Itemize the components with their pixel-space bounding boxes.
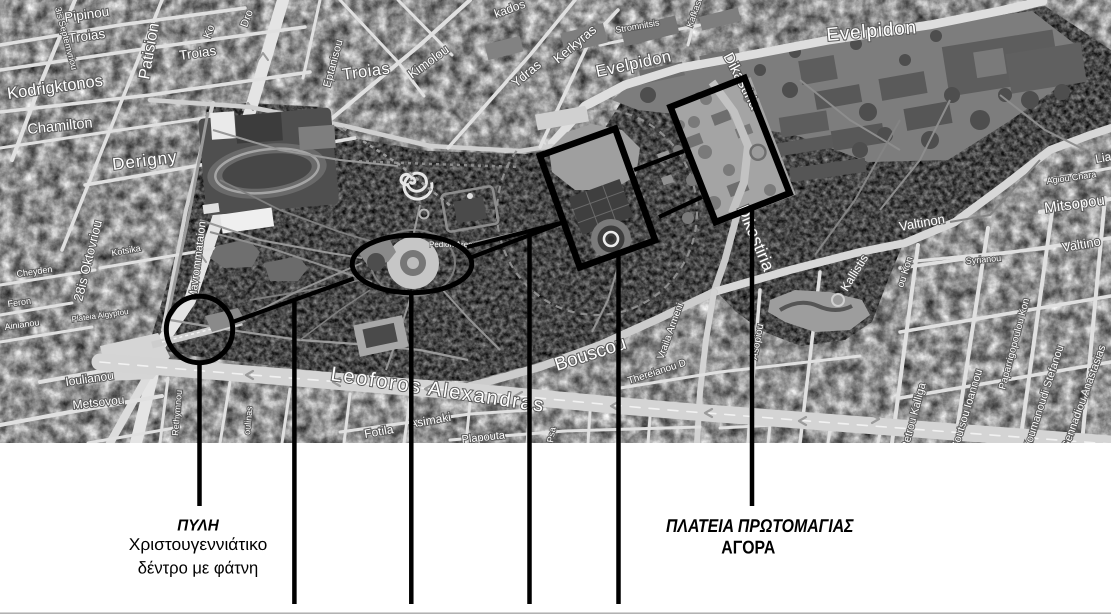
svg-text:Χριστουγεννιάτικο: Χριστουγεννιάτικο [129,535,268,554]
svg-text:ΠΛΑΤΕΙΑ ΠΡΩΤΟΜΑΓΙΑΣ: ΠΛΑΤΕΙΑ ΠΡΩΤΟΜΑΓΙΑΣ [666,515,854,536]
svg-text:ΑΓΟΡΑ: ΑΓΟΡΑ [721,537,775,558]
svg-text:Lia: Lia [1094,149,1111,166]
svg-text:ΠΥΛΗ: ΠΥΛΗ [177,518,219,535]
svg-text:δέντρο με φάτνη: δέντρο με φάτνη [138,559,259,578]
